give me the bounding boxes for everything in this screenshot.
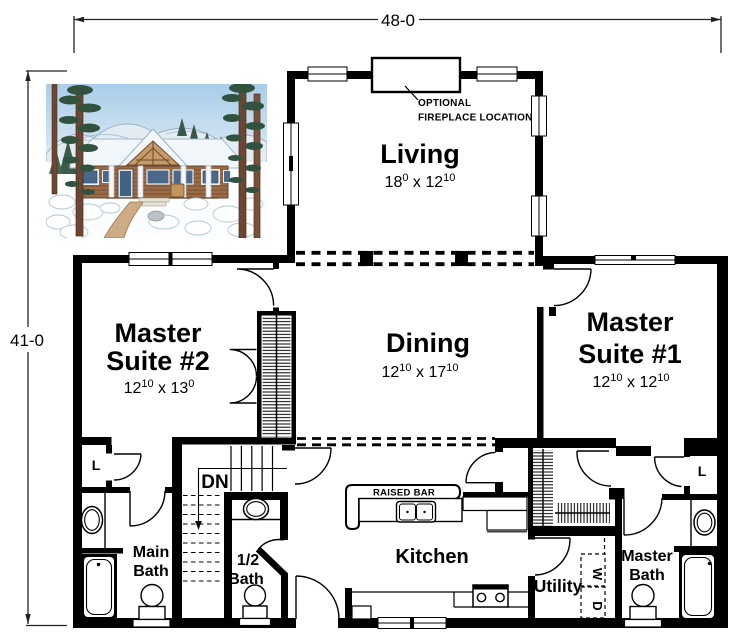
svg-text:Main: Main — [133, 544, 169, 561]
svg-text:FIREPLACE LOCATION: FIREPLACE LOCATION — [418, 113, 533, 124]
svg-text:OPTIONAL: OPTIONAL — [418, 98, 471, 109]
svg-text:RAISED BAR: RAISED BAR — [373, 488, 435, 499]
svg-text:L: L — [92, 457, 101, 473]
svg-text:Suite #2: Suite #2 — [106, 346, 210, 376]
svg-text:1210 x 130: 1210 x 130 — [124, 378, 195, 397]
svg-text:Utility: Utility — [534, 576, 583, 596]
svg-text:41-0: 41-0 — [10, 331, 44, 350]
svg-text:48-0: 48-0 — [381, 11, 415, 30]
svg-text:Living: Living — [380, 139, 460, 169]
svg-text:D: D — [590, 601, 605, 610]
svg-text:Master: Master — [621, 548, 673, 565]
svg-text:Bath: Bath — [133, 563, 169, 580]
svg-text:1/2: 1/2 — [237, 552, 259, 569]
svg-text:Bath: Bath — [228, 571, 264, 588]
svg-text:Kitchen: Kitchen — [395, 546, 468, 568]
svg-text:Master: Master — [114, 318, 202, 348]
svg-text:DN: DN — [201, 472, 228, 493]
svg-text:W: W — [590, 568, 605, 581]
svg-text:Bath: Bath — [629, 567, 665, 584]
svg-text:L: L — [698, 463, 707, 479]
svg-text:Dining: Dining — [386, 328, 470, 358]
svg-text:Suite #1: Suite #1 — [578, 339, 682, 369]
svg-text:Master: Master — [586, 307, 674, 337]
